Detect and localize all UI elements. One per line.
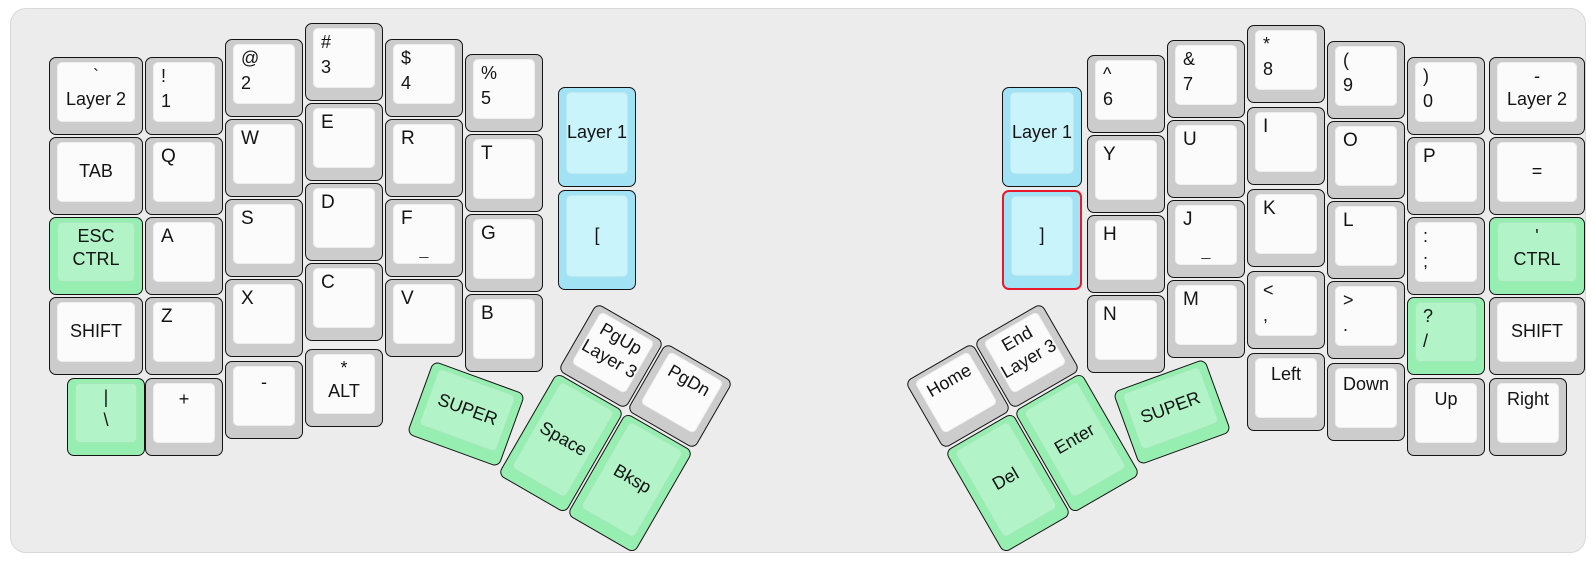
key-i-label-0: I bbox=[1263, 116, 1268, 137]
key-9[interactable]: (9 bbox=[1327, 41, 1405, 119]
key-slash-cap: ?/ bbox=[1415, 302, 1477, 362]
key-f-homing-mark: _ bbox=[394, 243, 454, 259]
key-layer1-left-cap: Layer 1 bbox=[566, 92, 628, 174]
key-2-cap: @2 bbox=[233, 44, 295, 104]
key-home-label-0: Home bbox=[923, 360, 975, 403]
key-6-label-1: 6 bbox=[1103, 89, 1113, 111]
key-tab[interactable]: TAB bbox=[49, 137, 143, 215]
key-pipe-backslash[interactable]: |\ bbox=[67, 378, 145, 456]
key-tab-label-0: TAB bbox=[79, 161, 113, 183]
key-y-label-0: Y bbox=[1103, 144, 1116, 165]
key-h-cap: H bbox=[1095, 220, 1157, 280]
key-p-label-0: P bbox=[1423, 146, 1436, 167]
key-period[interactable]: >. bbox=[1327, 281, 1405, 359]
key-s-cap: S bbox=[233, 204, 295, 264]
key-m[interactable]: M bbox=[1167, 280, 1245, 358]
key-right-cap: Right bbox=[1497, 383, 1559, 443]
key-minus-left-label-0: - bbox=[261, 372, 267, 394]
key-f-cap: F_ bbox=[393, 204, 455, 264]
key-minus-left[interactable]: - bbox=[225, 361, 303, 439]
key-slash[interactable]: ?/ bbox=[1407, 297, 1485, 375]
key-quote-ctrl[interactable]: 'CTRL bbox=[1489, 217, 1585, 295]
key-c-cap: C bbox=[313, 268, 375, 328]
key-i[interactable]: I bbox=[1247, 107, 1325, 185]
key-c[interactable]: C bbox=[305, 263, 383, 341]
key-m-cap: M bbox=[1175, 285, 1237, 345]
key-slash-label-0: ? bbox=[1423, 306, 1433, 328]
key-0-cap: )0 bbox=[1415, 62, 1477, 122]
key-7[interactable]: &7 bbox=[1167, 40, 1245, 118]
key-super-left[interactable]: SUPER bbox=[407, 361, 526, 468]
key-layer1-right-cap: Layer 1 bbox=[1010, 92, 1074, 174]
key-c-label-0: C bbox=[321, 272, 335, 293]
key-w-label-0: W bbox=[241, 128, 259, 149]
key-r-cap: R bbox=[393, 124, 455, 184]
key-6[interactable]: ^6 bbox=[1087, 55, 1165, 133]
key-n-label-0: N bbox=[1103, 304, 1117, 325]
key-slash-label-1: / bbox=[1423, 331, 1428, 353]
key-8-cap: *8 bbox=[1255, 30, 1317, 90]
key-l-cap: L bbox=[1335, 206, 1397, 266]
key-j[interactable]: J_ bbox=[1167, 200, 1245, 278]
key-2-label-1: 2 bbox=[241, 73, 251, 95]
key-enter-label-0: Enter bbox=[1051, 419, 1099, 459]
key-i-cap: I bbox=[1255, 112, 1317, 172]
key-s-label-0: S bbox=[241, 208, 254, 229]
key-f-label: F bbox=[401, 208, 413, 229]
key-v-cap: V bbox=[393, 284, 455, 344]
key-super-right[interactable]: SUPER bbox=[1113, 359, 1232, 466]
key-j-label: J bbox=[1183, 209, 1193, 230]
key-rbracket-cap: ] bbox=[1011, 196, 1073, 276]
key-v[interactable]: V bbox=[385, 279, 463, 357]
key-plus-cap: + bbox=[153, 383, 215, 443]
key-7-label-0: & bbox=[1183, 49, 1195, 71]
key-h[interactable]: H bbox=[1087, 215, 1165, 293]
key-period-cap: >. bbox=[1335, 286, 1397, 346]
key-6-cap: ^6 bbox=[1095, 60, 1157, 120]
key-right[interactable]: Right bbox=[1489, 378, 1567, 456]
key-t-cap: T bbox=[473, 139, 535, 199]
key-5-label-1: 5 bbox=[481, 88, 491, 110]
key-plus-label-0: + bbox=[179, 389, 190, 411]
key-comma-label-1: , bbox=[1263, 305, 1268, 327]
key-up[interactable]: Up bbox=[1407, 378, 1485, 456]
key-t[interactable]: T bbox=[465, 134, 543, 212]
key-space-label-0: Space bbox=[535, 417, 590, 461]
key-down-label-0: Down bbox=[1343, 374, 1389, 396]
key-quote-ctrl-cap: 'CTRL bbox=[1497, 222, 1577, 282]
key-4-label-1: 4 bbox=[401, 73, 411, 95]
key-0[interactable]: )0 bbox=[1407, 57, 1485, 135]
key-lbracket[interactable]: [ bbox=[558, 190, 636, 290]
key-h-label-0: H bbox=[1103, 224, 1117, 245]
key-1[interactable]: !1 bbox=[145, 57, 223, 135]
key-home-cap: Home bbox=[914, 351, 998, 434]
key-shift-left-label-0: SHIFT bbox=[70, 321, 122, 343]
key-z-label-0: Z bbox=[161, 306, 173, 327]
key-n[interactable]: N bbox=[1087, 295, 1165, 373]
key-1-label-1: 1 bbox=[161, 91, 171, 113]
key-shift-right-cap: SHIFT bbox=[1497, 302, 1577, 362]
key-lbracket-cap: [ bbox=[566, 195, 628, 277]
key-rbracket-label-0: ] bbox=[1039, 225, 1044, 247]
key-lbracket-label-0: [ bbox=[594, 225, 599, 247]
key-left[interactable]: Left bbox=[1247, 353, 1325, 431]
key-super-right-label-0: SUPER bbox=[1138, 387, 1204, 429]
key-layer1-left-label-0: Layer 1 bbox=[567, 122, 627, 144]
key-y[interactable]: Y bbox=[1087, 135, 1165, 213]
key-z[interactable]: Z bbox=[145, 297, 223, 375]
key-semicolon-cap: :; bbox=[1415, 222, 1477, 282]
key-comma-label-0: < bbox=[1263, 280, 1274, 302]
key-u[interactable]: U bbox=[1167, 120, 1245, 198]
key-o-cap: O bbox=[1335, 126, 1397, 186]
key-k-cap: K bbox=[1255, 194, 1317, 254]
key-esc-ctrl-cap: ESCCTRL bbox=[57, 222, 135, 282]
key-super-left-cap: SUPER bbox=[419, 368, 517, 452]
key-s[interactable]: S bbox=[225, 199, 303, 277]
key-x-cap: X bbox=[233, 284, 295, 344]
key-f[interactable]: F_ bbox=[385, 199, 463, 277]
key-bksp-label-0: Bksp bbox=[609, 460, 654, 499]
key-j-homing-mark: _ bbox=[1176, 244, 1236, 260]
key-2-label-0: @ bbox=[241, 48, 259, 70]
key-left-label-0: Left bbox=[1271, 364, 1301, 386]
key-minus-left-cap: - bbox=[233, 366, 295, 426]
key-pgdn-label-0: PgDn bbox=[664, 360, 714, 401]
key-q-label-0: Q bbox=[161, 146, 176, 167]
key-down[interactable]: Down bbox=[1327, 363, 1405, 441]
key-layer2-left-label-1: Layer 2 bbox=[66, 89, 126, 111]
key-o-label-0: O bbox=[1343, 130, 1358, 151]
key-end-layer3-cap: EndLayer 3 bbox=[983, 311, 1067, 394]
key-k[interactable]: K bbox=[1247, 189, 1325, 267]
key-b-cap: B bbox=[473, 299, 535, 359]
key-layer2-left[interactable]: `Layer 2 bbox=[49, 57, 143, 135]
key-8[interactable]: *8 bbox=[1247, 25, 1325, 103]
key-comma[interactable]: <, bbox=[1247, 271, 1325, 349]
key-star-alt-label-1: ALT bbox=[328, 381, 360, 403]
key-layer2-left-cap: `Layer 2 bbox=[57, 62, 135, 122]
key-4[interactable]: $4 bbox=[385, 39, 463, 117]
key-super-right-cap: SUPER bbox=[1122, 366, 1220, 450]
key-q[interactable]: Q bbox=[145, 137, 223, 215]
key-comma-cap: <, bbox=[1255, 276, 1317, 336]
key-layer2-left-label-0: ` bbox=[93, 66, 99, 88]
key-down-cap: Down bbox=[1335, 368, 1397, 428]
key-equals-cap: = bbox=[1497, 142, 1577, 202]
key-7-cap: &7 bbox=[1175, 45, 1237, 105]
key-layer2-right-label-1: Layer 2 bbox=[1507, 89, 1567, 111]
key-a-label-0: A bbox=[161, 226, 174, 247]
key-layer1-left[interactable]: Layer 1 bbox=[558, 87, 636, 187]
key-u-cap: U bbox=[1175, 125, 1237, 185]
key-pgdn-cap: PgDn bbox=[640, 351, 724, 434]
key-period-label-0: > bbox=[1343, 290, 1354, 312]
key-esc-ctrl[interactable]: ESCCTRL bbox=[49, 217, 143, 295]
key-3-label-0: # bbox=[321, 32, 331, 54]
key-g-cap: G bbox=[473, 219, 535, 279]
key-n-cap: N bbox=[1095, 300, 1157, 360]
key-d-cap: D bbox=[313, 188, 375, 248]
key-layer2-right[interactable]: -Layer 2 bbox=[1489, 57, 1585, 135]
key-e[interactable]: E bbox=[305, 103, 383, 181]
key-t-label-0: T bbox=[481, 143, 493, 164]
key-pipe-backslash-cap: |\ bbox=[75, 383, 137, 443]
key-d[interactable]: D bbox=[305, 183, 383, 261]
key-layer2-right-label-0: - bbox=[1534, 66, 1540, 88]
key-right-label-0: Right bbox=[1507, 389, 1549, 411]
key-x[interactable]: X bbox=[225, 279, 303, 357]
key-5[interactable]: %5 bbox=[465, 54, 543, 132]
key-pipe-backslash-label-1: \ bbox=[103, 410, 108, 432]
key-quote-ctrl-label-1: CTRL bbox=[1513, 249, 1560, 271]
key-a[interactable]: A bbox=[145, 217, 223, 295]
key-left-cap: Left bbox=[1255, 358, 1317, 418]
key-9-label-0: ( bbox=[1343, 50, 1349, 72]
key-g[interactable]: G bbox=[465, 214, 543, 292]
key-a-cap: A bbox=[153, 222, 215, 282]
key-semicolon-label-1: ; bbox=[1423, 251, 1428, 273]
key-w[interactable]: W bbox=[225, 119, 303, 197]
key-up-cap: Up bbox=[1415, 383, 1477, 443]
key-tab-cap: TAB bbox=[57, 142, 135, 202]
keyboard-board: `Layer 2TABESCCTRLSHIFT|\!1QAZ+@2WSX-#3E… bbox=[10, 8, 1586, 553]
key-g-label-0: G bbox=[481, 223, 496, 244]
key-equals-label-0: = bbox=[1532, 161, 1543, 183]
key-9-label-1: 9 bbox=[1343, 75, 1353, 97]
key-r[interactable]: R bbox=[385, 119, 463, 197]
key-w-cap: W bbox=[233, 124, 295, 184]
key-9-cap: (9 bbox=[1335, 46, 1397, 106]
key-semicolon-label-0: : bbox=[1423, 226, 1428, 248]
key-4-label-0: $ bbox=[401, 48, 411, 70]
key-shift-left-cap: SHIFT bbox=[57, 302, 135, 362]
key-m-label-0: M bbox=[1183, 289, 1199, 310]
key-plus[interactable]: + bbox=[145, 378, 223, 456]
key-y-cap: Y bbox=[1095, 140, 1157, 200]
key-7-label-1: 7 bbox=[1183, 74, 1193, 96]
key-r-label-0: R bbox=[401, 128, 415, 149]
key-star-alt[interactable]: *ALT bbox=[305, 349, 383, 427]
key-q-cap: Q bbox=[153, 142, 215, 202]
key-b-label-0: B bbox=[481, 303, 494, 324]
key-del-label-0: Del bbox=[989, 463, 1023, 495]
key-1-cap: !1 bbox=[153, 62, 215, 122]
key-k-label-0: K bbox=[1263, 198, 1276, 219]
key-p[interactable]: P bbox=[1407, 137, 1485, 215]
key-l[interactable]: L bbox=[1327, 201, 1405, 279]
key-shift-left[interactable]: SHIFT bbox=[49, 297, 143, 375]
key-5-cap: %5 bbox=[473, 59, 535, 119]
key-b[interactable]: B bbox=[465, 294, 543, 372]
key-0-label-0: ) bbox=[1423, 66, 1429, 88]
key-4-cap: $4 bbox=[393, 44, 455, 104]
key-super-left-label-0: SUPER bbox=[435, 389, 501, 431]
key-d-label-0: D bbox=[321, 192, 335, 213]
key-1-label-0: ! bbox=[161, 66, 166, 88]
key-star-alt-cap: *ALT bbox=[313, 354, 375, 414]
key-rbracket[interactable]: ] bbox=[1002, 190, 1082, 290]
key-o[interactable]: O bbox=[1327, 121, 1405, 199]
key-p-cap: P bbox=[1415, 142, 1477, 202]
key-pipe-backslash-label-0: | bbox=[104, 387, 109, 409]
key-l-label-0: L bbox=[1343, 210, 1354, 231]
key-quote-ctrl-label-0: ' bbox=[1535, 226, 1538, 248]
key-3-cap: #3 bbox=[313, 28, 375, 88]
key-esc-ctrl-label-1: CTRL bbox=[72, 249, 119, 271]
key-j-cap: J_ bbox=[1175, 205, 1237, 265]
key-equals[interactable]: = bbox=[1489, 137, 1585, 215]
key-x-label-0: X bbox=[241, 288, 254, 309]
key-0-label-1: 0 bbox=[1423, 91, 1433, 113]
key-shift-right-label-0: SHIFT bbox=[1511, 321, 1563, 343]
key-z-cap: Z bbox=[153, 302, 215, 362]
key-shift-right[interactable]: SHIFT bbox=[1489, 297, 1585, 375]
key-u-label-0: U bbox=[1183, 129, 1197, 150]
key-period-label-1: . bbox=[1343, 315, 1348, 337]
key-layer1-right-label-0: Layer 1 bbox=[1012, 122, 1072, 144]
key-2[interactable]: @2 bbox=[225, 39, 303, 117]
key-esc-ctrl-label-0: ESC bbox=[77, 226, 114, 248]
key-8-label-0: * bbox=[1263, 34, 1270, 56]
key-layer2-right-cap: -Layer 2 bbox=[1497, 62, 1577, 122]
key-3-label-1: 3 bbox=[321, 57, 331, 79]
key-star-alt-label-0: * bbox=[340, 358, 347, 380]
key-semicolon[interactable]: :; bbox=[1407, 217, 1485, 295]
key-up-label-0: Up bbox=[1434, 389, 1457, 411]
key-e-label-0: E bbox=[321, 112, 334, 133]
key-v-label-0: V bbox=[401, 288, 414, 309]
key-3[interactable]: #3 bbox=[305, 23, 383, 101]
key-5-label-0: % bbox=[481, 63, 497, 85]
key-8-label-1: 8 bbox=[1263, 59, 1273, 81]
key-layer1-right[interactable]: Layer 1 bbox=[1002, 87, 1082, 187]
key-e-cap: E bbox=[313, 108, 375, 168]
key-6-label-0: ^ bbox=[1103, 64, 1111, 86]
